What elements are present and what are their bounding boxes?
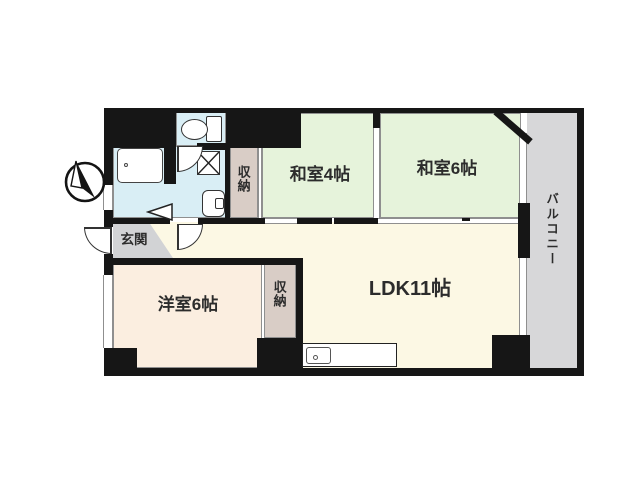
sink-drain-dot bbox=[313, 355, 318, 360]
bath-folding-door-icon bbox=[146, 203, 174, 221]
wall-closet-lower-right bbox=[296, 265, 303, 338]
window-balcony-upper bbox=[519, 133, 527, 203]
wall-block-above-closet bbox=[226, 110, 301, 148]
sliding-door-washitsu6-ldk bbox=[378, 218, 520, 224]
closet-lower-door-line bbox=[261, 263, 265, 338]
toilet-icon bbox=[181, 119, 208, 140]
label-washitsu6: 和室6帖 bbox=[377, 160, 517, 178]
sliding-door-washitsu4-ldk bbox=[265, 218, 297, 224]
wall-washitsu4-bottom bbox=[297, 218, 332, 224]
wall-top bbox=[104, 108, 584, 113]
label-balcony: バルコニー bbox=[544, 192, 557, 267]
label-western6: 洋室6帖 bbox=[118, 296, 258, 314]
wall-western-top bbox=[110, 258, 303, 265]
north-arrow-icon bbox=[62, 157, 108, 205]
label-entrance: 玄関 bbox=[112, 233, 156, 247]
label-ldk: LDK11帖 bbox=[340, 279, 480, 300]
wall-closet-upper-left bbox=[225, 146, 230, 218]
wall-partition-bottom bbox=[334, 218, 378, 224]
bathtub-faucet-dot bbox=[124, 163, 128, 167]
window-left-western bbox=[103, 275, 113, 348]
label-closet-lower: 収納 bbox=[272, 280, 286, 308]
wall-block-bottomright bbox=[492, 335, 530, 368]
wall-bottom bbox=[104, 368, 584, 376]
wall-block-western-bottomleft bbox=[108, 348, 137, 368]
wall-corridor-2 bbox=[198, 218, 265, 224]
sliding-door-tick bbox=[462, 218, 470, 221]
wall-balcony-mid bbox=[518, 203, 530, 258]
floor-plan: 和室4帖 和室6帖 LDK11帖 洋室6帖 玄関 収納 収納 バルコニー bbox=[0, 0, 640, 480]
wall-right bbox=[577, 108, 584, 376]
entrance-door-swing-icon bbox=[84, 227, 112, 254]
label-closet-upper: 収納 bbox=[236, 165, 250, 193]
kitchen-sink-icon bbox=[306, 347, 331, 364]
wall-bath-divider bbox=[164, 146, 176, 184]
wall-partition-top-tick bbox=[373, 108, 380, 128]
wall-block-below-closet-lower bbox=[257, 338, 303, 368]
toilet-tank bbox=[206, 116, 222, 142]
label-washitsu4: 和室4帖 bbox=[250, 166, 390, 184]
washbasin-faucet bbox=[215, 198, 224, 209]
window-balcony-lower bbox=[519, 258, 527, 335]
wall-block-topleft bbox=[110, 110, 176, 148]
